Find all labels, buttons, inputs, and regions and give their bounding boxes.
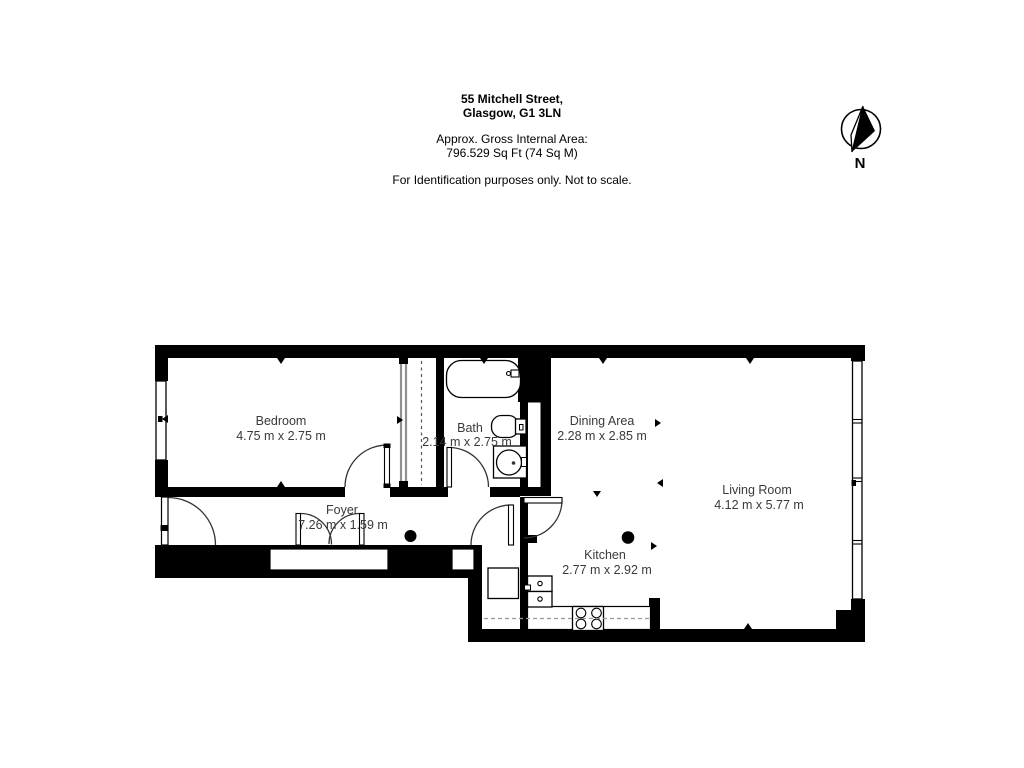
wall-recess xyxy=(452,549,474,570)
bathtub-icon xyxy=(447,361,521,398)
window-tick xyxy=(852,480,857,486)
room-dims-bedroom: 4.75 m x 2.75 m xyxy=(236,429,326,443)
column-dot-kitchen xyxy=(622,531,635,544)
sliding-door-cap xyxy=(399,358,408,364)
tick xyxy=(651,542,657,550)
room-label-living: Living Room xyxy=(722,483,791,497)
tick xyxy=(655,419,661,427)
door-arc xyxy=(524,500,562,538)
tub-tap-icon xyxy=(511,370,519,377)
wall-top xyxy=(155,345,865,358)
kitchen-fixtures xyxy=(488,568,651,631)
door-handle-mark xyxy=(161,525,169,531)
door-leaf xyxy=(524,498,562,504)
sink-basin-icon xyxy=(497,450,522,475)
bath-fixtures xyxy=(447,361,527,479)
room-label-bedroom: Bedroom xyxy=(256,414,307,428)
wall-right-top xyxy=(851,345,865,361)
tick xyxy=(277,358,285,364)
door-hinge-cap xyxy=(384,484,391,489)
window-tick xyxy=(158,416,163,422)
wall-bedroom-foyer-a xyxy=(155,487,345,497)
sink-drain-dot xyxy=(512,461,516,465)
tick xyxy=(657,479,663,487)
room-dims-dining: 2.28 m x 2.85 m xyxy=(557,429,647,443)
door-arc xyxy=(471,505,511,545)
sink-tap-icon xyxy=(522,458,527,467)
wall-bath-left xyxy=(436,358,444,487)
door-hinge-cap xyxy=(384,444,391,449)
stove-burner xyxy=(592,608,602,618)
floorplan-page: { "header": { "address_line1": "55 Mitch… xyxy=(0,0,1024,768)
wall-bedroom-foyer-c xyxy=(490,487,520,497)
wall-dining-left xyxy=(541,358,551,493)
tick xyxy=(744,623,752,629)
tub-tap-dot xyxy=(507,372,511,376)
floorplan-drawing: Bedroom 4.75 m x 2.75 m Bath 2.14 m x 2.… xyxy=(0,0,1024,768)
room-dims-living: 4.12 m x 5.77 m xyxy=(714,498,804,512)
room-dims-foyer: 7.26 m x 1.59 m xyxy=(298,518,388,532)
kitchen-sink-drain xyxy=(538,581,542,585)
stove-burner xyxy=(592,619,602,629)
door-leaf xyxy=(509,505,514,545)
tick xyxy=(593,491,601,497)
stove-burner xyxy=(576,619,586,629)
room-label-dining: Dining Area xyxy=(570,414,635,428)
door-arc xyxy=(345,445,387,487)
kitchen-sink-drain xyxy=(538,597,542,601)
room-label-foyer: Foyer xyxy=(326,503,358,517)
wall-bedroom-foyer-b xyxy=(390,487,448,497)
service-shaft xyxy=(528,402,542,488)
closet xyxy=(399,358,422,487)
tick xyxy=(746,358,754,364)
wall-bottom xyxy=(468,629,865,642)
wall-kitchen-left xyxy=(520,497,528,629)
toilet-button xyxy=(520,425,524,431)
door-leaf xyxy=(162,497,169,545)
tick xyxy=(277,481,285,487)
room-dims-kitchen: 2.77 m x 2.92 m xyxy=(562,563,652,577)
door-leaf xyxy=(447,448,452,488)
entrance-recess xyxy=(270,549,388,570)
stove-burner xyxy=(576,608,586,618)
room-label-kitchen: Kitchen xyxy=(584,548,626,562)
wall-step xyxy=(836,610,858,635)
door-leaf xyxy=(385,445,390,487)
door-arc xyxy=(168,498,216,546)
room-label-bath: Bath xyxy=(457,421,483,435)
washer-icon xyxy=(488,568,519,599)
room-dims-bath: 2.14 m x 2.75 m xyxy=(422,435,512,449)
door-arc xyxy=(449,448,489,488)
wall-left-upper xyxy=(155,345,168,381)
column-dot-foyer xyxy=(405,530,417,542)
sliding-door-cap xyxy=(399,481,408,487)
tick xyxy=(599,358,607,364)
kitchen-tap-icon xyxy=(525,585,531,590)
